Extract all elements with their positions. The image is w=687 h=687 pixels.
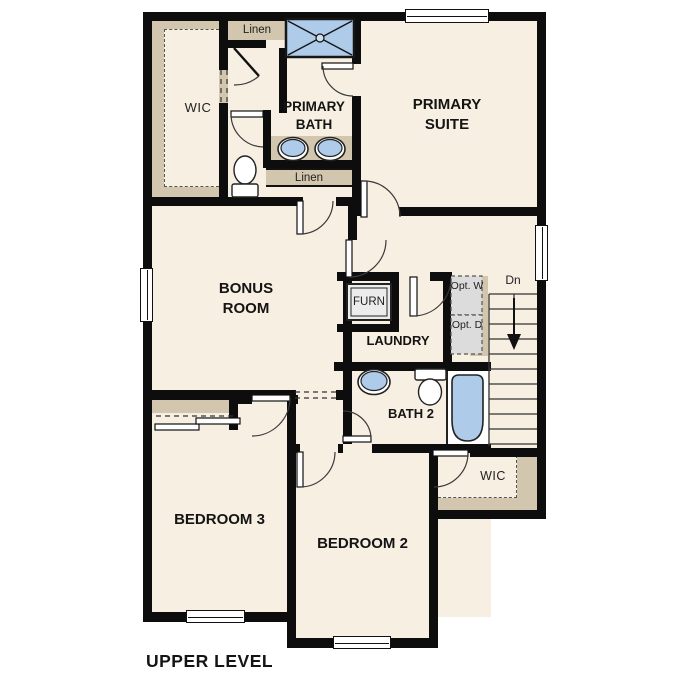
opt-dryer-label: Opt. D <box>449 319 485 333</box>
wall <box>399 207 546 216</box>
wic-primary-label: WIC <box>168 100 228 117</box>
bedroom2-label: BEDROOM 2 <box>296 534 429 554</box>
furnace-label: FURN <box>347 295 391 310</box>
wall <box>334 362 491 371</box>
wall <box>229 390 238 430</box>
opt-washer-label: Opt. W <box>449 280 485 294</box>
wall <box>429 510 546 519</box>
level-title: UPPER LEVEL <box>146 650 346 673</box>
tub-alcove <box>446 371 488 444</box>
stairs-dn-label: Dn <box>498 273 528 289</box>
window <box>535 225 548 281</box>
laundry-label: LAUNDRY <box>352 333 444 350</box>
wall <box>228 40 266 48</box>
wall <box>143 12 152 268</box>
bath2-label: BATH 2 <box>385 406 437 423</box>
wall <box>470 448 537 457</box>
wall <box>237 395 252 404</box>
wall <box>429 444 438 648</box>
linen-top-label: Linen <box>228 23 286 38</box>
wall <box>352 12 361 64</box>
bedroom3-label: BEDROOM 3 <box>152 510 287 530</box>
wall <box>537 12 546 225</box>
window <box>186 610 245 623</box>
window <box>140 268 153 322</box>
primary-suite-label: PRIMARY SUITE <box>400 95 494 134</box>
wall <box>348 197 357 240</box>
linen-bath-label: Linen <box>266 171 352 186</box>
floor-plan: WIC Linen PRIMARY BATH PRIMARY SUITE Lin… <box>0 0 687 687</box>
wall <box>263 160 357 168</box>
wall <box>338 444 343 453</box>
wall <box>143 197 303 206</box>
wall <box>143 390 295 400</box>
wall <box>537 281 546 519</box>
window <box>405 9 489 23</box>
wall <box>263 110 271 168</box>
bedroom3-closet-shelf <box>152 398 229 413</box>
wall <box>343 362 352 444</box>
wall <box>219 12 228 70</box>
wic2-label: WIC <box>470 468 516 484</box>
bonus-room-label: BONUS ROOM <box>205 279 287 318</box>
primary-vanity <box>266 136 352 160</box>
wall <box>219 103 228 197</box>
wall <box>287 390 296 648</box>
wall <box>390 272 399 332</box>
primary-bath-label: PRIMARY BATH <box>276 98 352 133</box>
window <box>333 636 391 649</box>
wall <box>143 322 152 622</box>
